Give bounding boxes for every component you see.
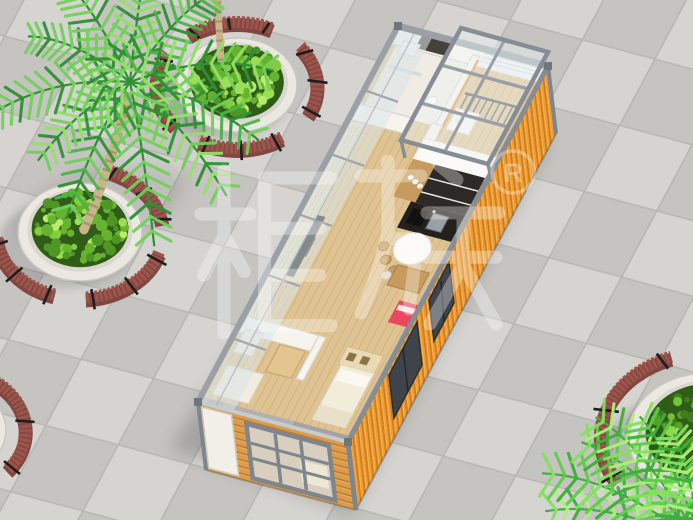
registered-letter: R xyxy=(503,158,523,188)
bench-metal-leg xyxy=(241,140,242,160)
corner-fitting xyxy=(344,438,352,446)
corner-fitting xyxy=(394,22,402,30)
scene-container-house-render: 柜族 R xyxy=(0,0,693,520)
corner-fitting xyxy=(194,398,202,406)
bench-metal-leg xyxy=(15,421,34,422)
corner-fitting xyxy=(544,62,552,70)
scene-render: 柜族 R xyxy=(0,0,693,520)
